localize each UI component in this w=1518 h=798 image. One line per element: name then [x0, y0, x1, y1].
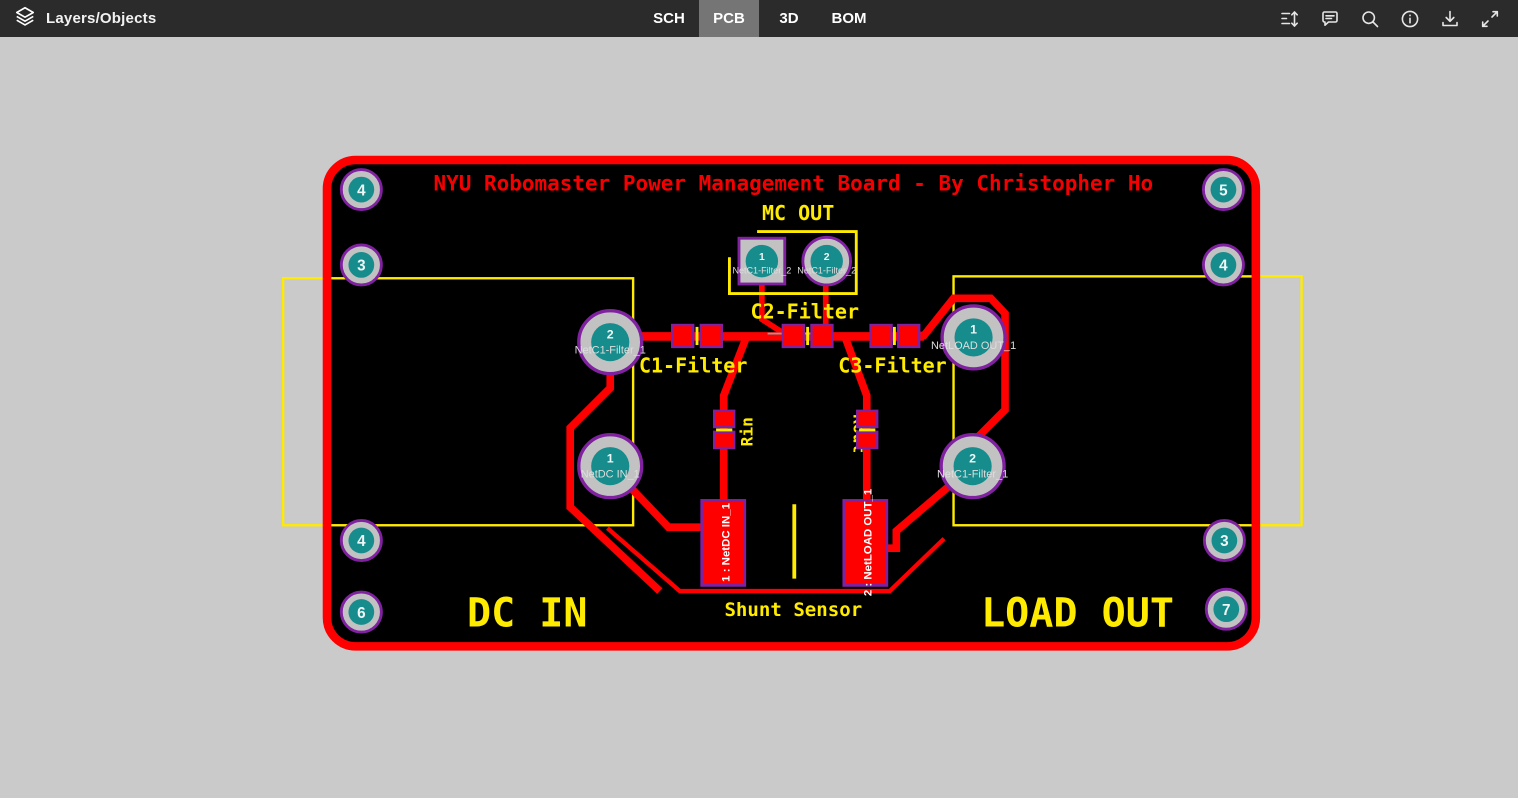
measure-icon[interactable]	[1270, 0, 1310, 37]
corner-pad[interactable]: 4	[1203, 245, 1243, 285]
search-icon[interactable]	[1350, 0, 1390, 37]
download-icon[interactable]	[1430, 0, 1470, 37]
pad-netdc-in-1[interactable]: 1 NetDC IN_1	[579, 435, 642, 498]
svg-text:NetC1-Filter_2: NetC1-Filter_2	[797, 266, 856, 276]
svg-text:NetDC IN_1: NetDC IN_1	[581, 469, 640, 481]
pcb-canvas[interactable]: NYU Robomaster Power Management Board - …	[0, 37, 1518, 798]
shunt-sensor-label: Shunt Sensor	[724, 599, 862, 621]
corner-pad[interactable]: 6	[341, 592, 381, 632]
svg-text:4: 4	[357, 182, 366, 199]
svg-text:1: 1	[607, 451, 614, 465]
corner-pad[interactable]: 3	[1204, 520, 1244, 560]
svg-text:3: 3	[357, 258, 365, 275]
svg-text:NetC1-Filter_1: NetC1-Filter_1	[575, 345, 646, 357]
svg-text:3: 3	[1220, 533, 1228, 550]
mc-pad-1[interactable]: 1 NetC1-Filter_2	[732, 238, 791, 284]
svg-text:2: 2	[969, 451, 976, 465]
comment-icon[interactable]	[1310, 0, 1350, 37]
tab-3d[interactable]: 3D	[759, 0, 819, 37]
c2-filter-label: C2-Filter	[751, 299, 859, 323]
fullscreen-icon[interactable]	[1470, 0, 1510, 37]
view-tabs: SCH PCB 3D BOM	[639, 0, 879, 37]
corner-pad[interactable]: 4	[341, 170, 381, 210]
c3-filter-label: C3-Filter	[838, 354, 946, 378]
svg-text:1: 1	[970, 323, 977, 337]
tab-sch[interactable]: SCH	[639, 0, 699, 37]
svg-text:NetC1-Filter_2: NetC1-Filter_2	[732, 266, 791, 276]
shunt-pad-2-label: 2 : NetLOAD OUT_1	[863, 488, 875, 596]
c3-filter-pads	[871, 325, 920, 347]
corner-pad[interactable]: 3	[341, 245, 381, 285]
c1-filter-label: C1-Filter	[639, 354, 747, 378]
rin-label: Rin	[737, 417, 756, 446]
capacitor-footprints[interactable]	[672, 325, 919, 347]
toolbar-actions	[1270, 0, 1510, 37]
board-title: NYU Robomaster Power Management Board - …	[434, 172, 1154, 196]
shunt-pad-1-label: 1 : NetDC IN_1	[720, 502, 732, 581]
corner-pad[interactable]: 7	[1206, 589, 1246, 629]
layers-objects-button[interactable]: Layers/Objects	[0, 5, 156, 32]
svg-text:1: 1	[759, 252, 765, 263]
pcb-drawing: NYU Robomaster Power Management Board - …	[0, 37, 1518, 798]
rout-pads	[857, 411, 877, 448]
info-icon[interactable]	[1390, 0, 1430, 37]
svg-text:6: 6	[357, 605, 365, 622]
top-toolbar: Layers/Objects SCH PCB 3D BOM	[0, 0, 1518, 37]
c1-filter-pads	[672, 325, 722, 347]
dc-in-label: DC IN	[467, 590, 588, 636]
c2-filter-pads	[783, 325, 833, 347]
layers-icon	[14, 5, 36, 32]
layers-objects-label: Layers/Objects	[46, 10, 156, 27]
tab-pcb[interactable]: PCB	[699, 0, 759, 37]
load-out-label: LOAD OUT	[981, 590, 1174, 636]
svg-text:NetC1-Filter_1: NetC1-Filter_1	[937, 469, 1008, 481]
svg-text:7: 7	[1222, 602, 1230, 619]
svg-text:4: 4	[357, 533, 366, 550]
svg-text:2: 2	[607, 327, 614, 341]
tab-bom[interactable]: BOM	[819, 0, 879, 37]
corner-pad[interactable]: 4	[341, 520, 381, 560]
svg-text:5: 5	[1219, 182, 1228, 199]
rin-pads	[714, 411, 734, 448]
mc-out-label: MC OUT	[762, 201, 834, 225]
svg-text:2: 2	[824, 252, 830, 263]
svg-text:NetLOAD OUT_1: NetLOAD OUT_1	[931, 340, 1016, 352]
svg-text:4: 4	[1219, 258, 1228, 275]
corner-pad[interactable]: 5	[1203, 170, 1243, 210]
